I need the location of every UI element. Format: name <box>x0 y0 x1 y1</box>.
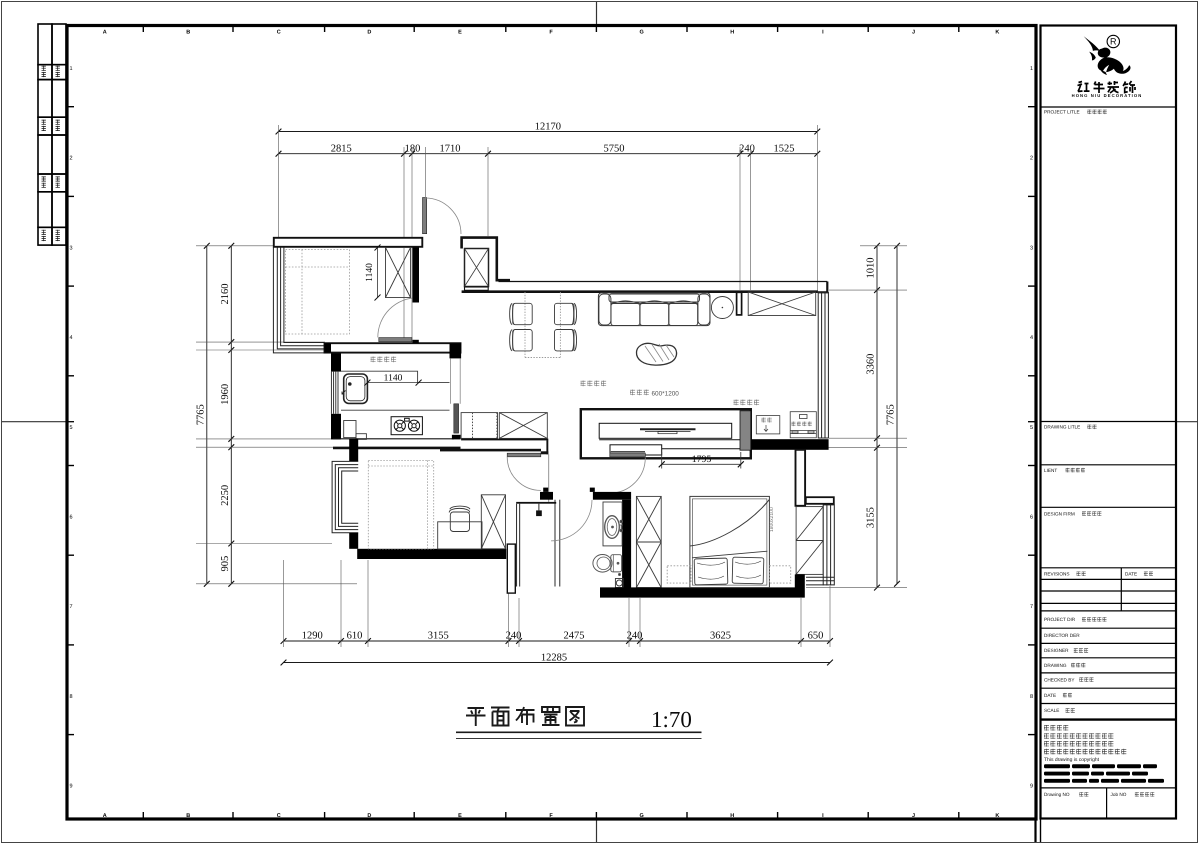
svg-text:2160: 2160 <box>220 284 231 305</box>
svg-text:1: 1 <box>1030 66 1033 72</box>
svg-text:R: R <box>1110 37 1117 47</box>
svg-text:3155: 3155 <box>866 507 877 528</box>
svg-text:2250: 2250 <box>220 485 231 506</box>
svg-text:1010: 1010 <box>866 258 877 279</box>
svg-text:1710: 1710 <box>440 144 461 155</box>
svg-text:5: 5 <box>70 425 73 431</box>
svg-text:3: 3 <box>70 245 73 251</box>
svg-text:4: 4 <box>70 335 73 341</box>
svg-text:REVISIONS: REVISIONS <box>1044 571 1070 576</box>
svg-text:2: 2 <box>1030 156 1033 162</box>
svg-text:2815: 2815 <box>331 144 352 155</box>
svg-text:1290: 1290 <box>302 631 323 642</box>
svg-text:1795: 1795 <box>692 454 712 465</box>
svg-text:3: 3 <box>1030 245 1033 251</box>
svg-text:K: K <box>995 30 999 36</box>
svg-text:H: H <box>730 30 734 36</box>
svg-text:DRAWING LITLE: DRAWING LITLE <box>1044 425 1080 430</box>
svg-text:2475: 2475 <box>564 631 585 642</box>
svg-text:D: D <box>367 813 371 819</box>
svg-text:D: D <box>367 30 371 36</box>
svg-text:A: A <box>103 813 107 819</box>
svg-text:3625: 3625 <box>710 631 731 642</box>
svg-text:G: G <box>640 30 644 36</box>
svg-text:PROJECT DIR: PROJECT DIR <box>1044 617 1076 622</box>
svg-text:7765: 7765 <box>886 404 897 425</box>
svg-text:4: 4 <box>1030 335 1033 341</box>
svg-text:600*1200: 600*1200 <box>652 390 680 397</box>
svg-text:HONG NIU DECORATION: HONG NIU DECORATION <box>1072 93 1143 98</box>
svg-text:2: 2 <box>70 156 73 162</box>
svg-text:240: 240 <box>739 144 755 155</box>
svg-text:H: H <box>730 813 734 819</box>
svg-text:DATE: DATE <box>1125 571 1137 576</box>
svg-text:C: C <box>277 813 281 819</box>
svg-text:A: A <box>103 30 107 36</box>
svg-text:DRAWING: DRAWING <box>1044 663 1067 668</box>
svg-text:5750: 5750 <box>604 144 625 155</box>
svg-text:8: 8 <box>70 694 73 700</box>
svg-text:8: 8 <box>1030 694 1033 700</box>
svg-text:12170: 12170 <box>535 122 561 133</box>
svg-text:B: B <box>186 30 190 36</box>
svg-text:650: 650 <box>808 631 824 642</box>
svg-text:1:70: 1:70 <box>651 707 692 732</box>
svg-text:12285: 12285 <box>541 653 567 664</box>
svg-text:3155: 3155 <box>428 631 449 642</box>
svg-text:1: 1 <box>70 66 73 72</box>
svg-text:1800x2100: 1800x2100 <box>769 507 775 532</box>
svg-text:SCALE: SCALE <box>1044 708 1059 713</box>
svg-text:G: G <box>640 813 644 819</box>
svg-text:7: 7 <box>70 604 73 610</box>
svg-text:E: E <box>458 30 462 36</box>
svg-text:DATE: DATE <box>1044 693 1056 698</box>
svg-text:180: 180 <box>405 144 421 155</box>
svg-text:3360: 3360 <box>866 354 877 375</box>
svg-text:This drawing is copyright: This drawing is copyright <box>1044 757 1100 763</box>
svg-text:9: 9 <box>1030 784 1033 790</box>
svg-text:LIENT: LIENT <box>1044 468 1057 473</box>
svg-text:DESIGN FIRM: DESIGN FIRM <box>1044 511 1075 516</box>
svg-text:B: B <box>186 813 190 819</box>
svg-text:1140: 1140 <box>384 373 403 383</box>
svg-text:DIRECTOR DER: DIRECTOR DER <box>1044 633 1080 638</box>
svg-text:610: 610 <box>347 631 363 642</box>
svg-text:DESIGNER: DESIGNER <box>1044 648 1069 653</box>
svg-text:9: 9 <box>70 784 73 790</box>
svg-text:905: 905 <box>220 556 231 572</box>
svg-text:1960: 1960 <box>220 384 231 405</box>
svg-text:Drawing NO: Drawing NO <box>1044 792 1070 797</box>
svg-text:7765: 7765 <box>195 404 206 425</box>
svg-text:1525: 1525 <box>774 144 795 155</box>
svg-text:CHECKED BY: CHECKED BY <box>1044 677 1075 682</box>
svg-text:7: 7 <box>1030 604 1033 610</box>
svg-text:6: 6 <box>1030 515 1033 521</box>
svg-text:J: J <box>912 813 915 819</box>
svg-text:1140: 1140 <box>365 263 375 282</box>
svg-text:PROJECT LITLE: PROJECT LITLE <box>1044 110 1080 115</box>
svg-text:5: 5 <box>1030 425 1033 431</box>
svg-text:C: C <box>277 30 281 36</box>
svg-text:6: 6 <box>70 515 73 521</box>
svg-text:E: E <box>458 813 462 819</box>
svg-text:K: K <box>995 813 999 819</box>
svg-text:Job NO: Job NO <box>1111 792 1127 797</box>
svg-text:J: J <box>912 30 915 36</box>
